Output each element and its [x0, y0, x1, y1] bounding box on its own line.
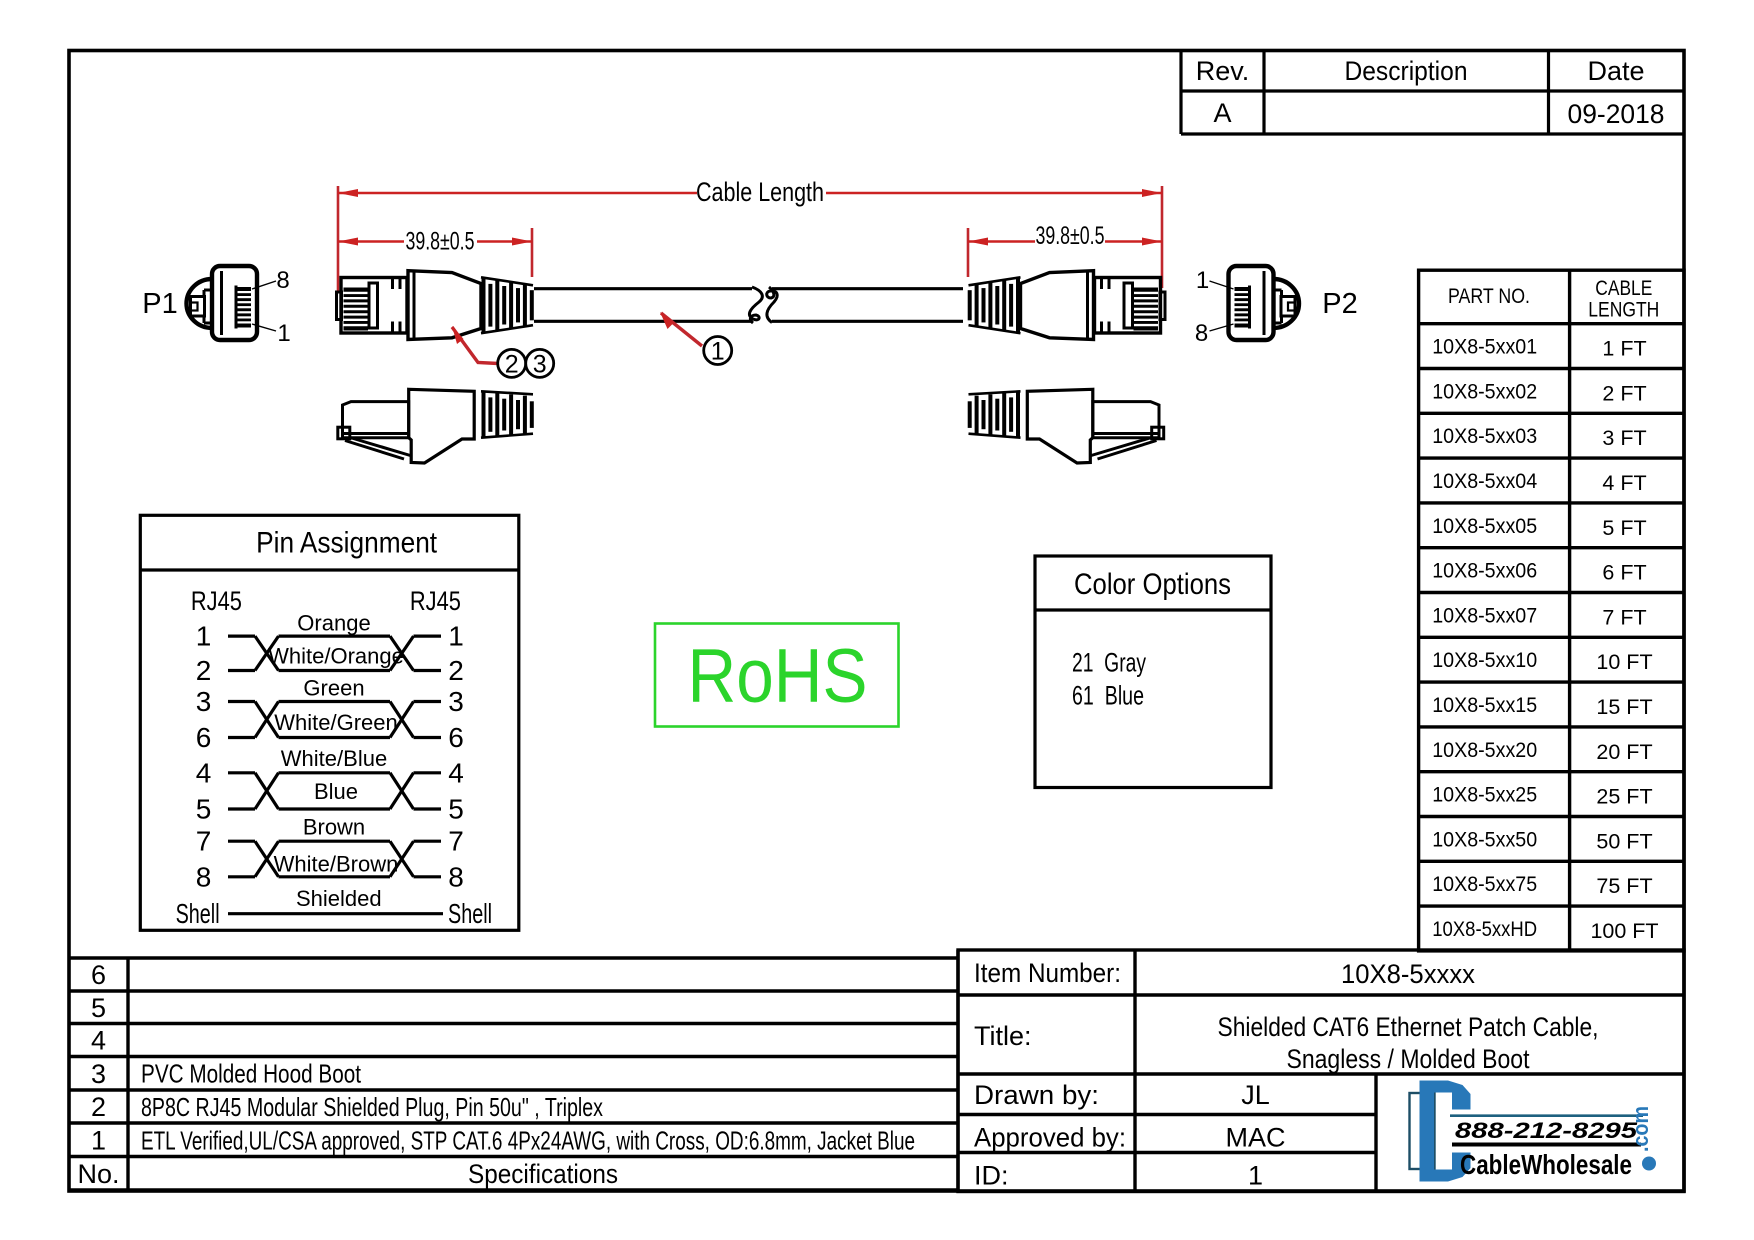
svg-text:4: 4	[448, 757, 464, 788]
svg-text:Snagless / Molded Boot: Snagless / Molded Boot	[1287, 1044, 1530, 1074]
svg-text:100 FT: 100 FT	[1590, 919, 1658, 943]
svg-text:2: 2	[505, 351, 519, 379]
svg-text:7 FT: 7 FT	[1602, 605, 1646, 629]
svg-text:8: 8	[1195, 320, 1208, 347]
svg-text:Date: Date	[1587, 56, 1644, 86]
svg-text:10X8-5xx15: 10X8-5xx15	[1432, 693, 1537, 717]
svg-text:10X8-5xx10: 10X8-5xx10	[1432, 648, 1537, 672]
svg-text:Blue: Blue	[314, 779, 358, 804]
svg-text:21 Gray: 21 Gray	[1072, 648, 1146, 678]
svg-text:1: 1	[448, 621, 464, 652]
svg-text:1 FT: 1 FT	[1602, 337, 1646, 361]
svg-text:Description: Description	[1345, 56, 1468, 86]
svg-text:6: 6	[196, 722, 212, 753]
svg-text:10X8-5xx02: 10X8-5xx02	[1432, 379, 1537, 403]
svg-text:3: 3	[196, 686, 212, 717]
svg-text:10X8-5xx75: 10X8-5xx75	[1432, 872, 1537, 896]
svg-text:1: 1	[711, 338, 725, 366]
svg-text:09-2018: 09-2018	[1568, 99, 1665, 129]
svg-text:10X8-5xx03: 10X8-5xx03	[1432, 424, 1537, 448]
svg-text:6 FT: 6 FT	[1602, 561, 1646, 585]
svg-text:10X8-5xx07: 10X8-5xx07	[1432, 603, 1537, 627]
svg-text:61 Blue: 61 Blue	[1072, 681, 1144, 711]
svg-text:2: 2	[448, 655, 464, 686]
svg-text:1: 1	[91, 1125, 106, 1155]
svg-text:3: 3	[533, 351, 547, 379]
svg-text:10X8-5xx06: 10X8-5xx06	[1432, 559, 1537, 583]
svg-text:RJ45: RJ45	[191, 586, 242, 616]
svg-text:No.: No.	[77, 1159, 119, 1189]
svg-text:10X8-5xx05: 10X8-5xx05	[1432, 514, 1537, 538]
svg-text:Green: Green	[303, 676, 364, 701]
svg-text:Rev.: Rev.	[1196, 56, 1250, 86]
svg-text:CableWholesale: CableWholesale	[1460, 1149, 1632, 1180]
svg-text:5: 5	[91, 993, 106, 1023]
svg-text:15 FT: 15 FT	[1596, 695, 1652, 719]
svg-text:888-212-8295: 888-212-8295	[1455, 1118, 1638, 1143]
svg-text:6: 6	[448, 722, 464, 753]
svg-text:39.8±0.5: 39.8±0.5	[1036, 222, 1105, 250]
svg-text:CABLE: CABLE	[1595, 276, 1652, 300]
svg-text:8P8C RJ45 Modular Shielded Plu: 8P8C RJ45 Modular Shielded Plug, Pin 50u…	[141, 1092, 603, 1122]
svg-text:10X8-5xx25: 10X8-5xx25	[1432, 783, 1537, 807]
svg-text:Orange: Orange	[297, 610, 370, 635]
svg-text:Shell: Shell	[448, 898, 492, 929]
svg-text:10X8-5xx04: 10X8-5xx04	[1432, 469, 1537, 493]
svg-text:Shielded CAT6 Ethernet Patch C: Shielded CAT6 Ethernet Patch Cable,	[1218, 1012, 1599, 1042]
svg-text:Cable Length: Cable Length	[696, 177, 824, 207]
svg-text:Shielded: Shielded	[296, 886, 382, 911]
svg-text:8: 8	[196, 861, 212, 892]
svg-text:Shell: Shell	[176, 898, 220, 929]
svg-text:4: 4	[91, 1026, 106, 1056]
svg-text:White/Orange: White/Orange	[268, 644, 404, 669]
svg-text:1: 1	[277, 320, 290, 347]
svg-text:ETL Verified,UL/CSA approved,: ETL Verified,UL/CSA approved, STP CAT.6 …	[141, 1126, 915, 1156]
svg-text:1: 1	[196, 621, 212, 652]
svg-text:Title:: Title:	[974, 1021, 1032, 1051]
svg-text:75 FT: 75 FT	[1596, 874, 1652, 898]
svg-text:7: 7	[448, 826, 464, 857]
svg-text:39.8±0.5: 39.8±0.5	[406, 228, 475, 256]
svg-text:2 FT: 2 FT	[1602, 381, 1646, 405]
svg-text:LENGTH: LENGTH	[1588, 298, 1659, 322]
svg-text:PVC Molded Hood Boot: PVC Molded Hood Boot	[141, 1059, 362, 1089]
svg-text:1: 1	[1248, 1161, 1263, 1191]
svg-text:P1: P1	[142, 288, 177, 320]
svg-text:5: 5	[448, 794, 464, 825]
svg-text:10X8-5xx01: 10X8-5xx01	[1432, 335, 1537, 359]
svg-text:White/Blue: White/Blue	[281, 746, 387, 771]
svg-text:Approved by:: Approved by:	[974, 1123, 1126, 1153]
svg-text:50 FT: 50 FT	[1596, 829, 1652, 853]
svg-text:8: 8	[448, 861, 464, 892]
svg-text:3: 3	[91, 1059, 106, 1089]
svg-text:Color Options: Color Options	[1074, 568, 1231, 601]
svg-text:A: A	[1213, 98, 1231, 128]
svg-text:Specifications: Specifications	[468, 1159, 618, 1189]
svg-text:10X8-5xxxx: 10X8-5xxxx	[1341, 959, 1475, 989]
svg-text:20 FT: 20 FT	[1596, 740, 1652, 764]
svg-text:RoHS: RoHS	[688, 634, 868, 719]
svg-text:10X8-5xx20: 10X8-5xx20	[1432, 738, 1537, 762]
svg-text:3 FT: 3 FT	[1602, 426, 1646, 450]
svg-text:4 FT: 4 FT	[1602, 471, 1646, 495]
svg-text:10X8-5xxHD: 10X8-5xxHD	[1432, 917, 1537, 941]
svg-text:P2: P2	[1322, 288, 1357, 320]
svg-text:Item Number:: Item Number:	[974, 958, 1121, 988]
svg-text:4: 4	[196, 757, 212, 788]
svg-text:5 FT: 5 FT	[1602, 516, 1646, 540]
svg-text:7: 7	[196, 826, 212, 857]
svg-text:3: 3	[448, 686, 464, 717]
svg-text:Brown: Brown	[303, 815, 365, 840]
svg-text:.com: .com	[1628, 1106, 1653, 1152]
svg-text:1: 1	[1196, 267, 1209, 294]
svg-text:5: 5	[196, 794, 212, 825]
svg-text:White/Green: White/Green	[274, 710, 398, 735]
svg-text:JL: JL	[1241, 1080, 1270, 1110]
svg-text:Pin Assignment: Pin Assignment	[256, 527, 438, 560]
svg-text:ID:: ID:	[974, 1161, 1009, 1191]
svg-text:10X8-5xx50: 10X8-5xx50	[1432, 827, 1537, 851]
svg-text:RJ45: RJ45	[410, 586, 461, 616]
svg-text:MAC: MAC	[1226, 1123, 1286, 1153]
svg-text:25 FT: 25 FT	[1596, 785, 1652, 809]
svg-text:2: 2	[196, 655, 212, 686]
svg-text:8: 8	[276, 267, 289, 294]
svg-text:PART NO.: PART NO.	[1448, 284, 1530, 308]
svg-text:10 FT: 10 FT	[1596, 650, 1652, 674]
svg-text:6: 6	[91, 960, 106, 990]
svg-text:White/Brown: White/Brown	[274, 852, 399, 877]
svg-text:2: 2	[91, 1092, 106, 1122]
svg-text:Drawn by:: Drawn by:	[974, 1080, 1099, 1110]
